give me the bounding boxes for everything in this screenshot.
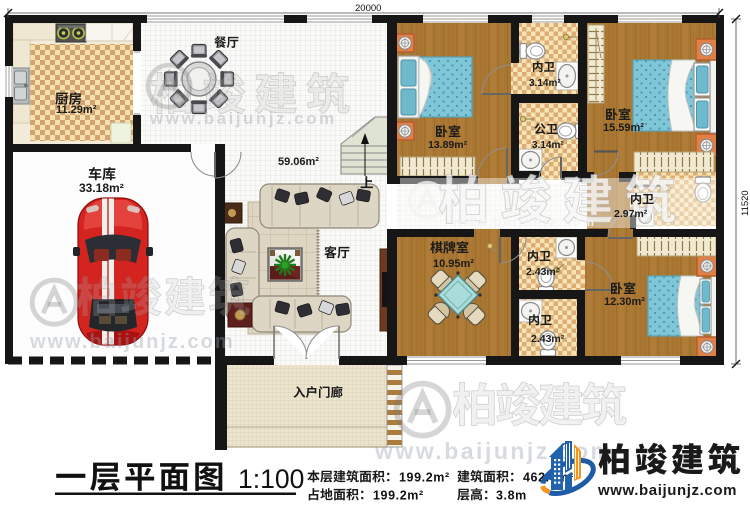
svg-text:2.43m²: 2.43m² xyxy=(531,333,565,345)
svg-text:20000: 20000 xyxy=(355,3,381,14)
svg-text:www.baijunjz.com: www.baijunjz.com xyxy=(29,331,235,353)
svg-text:2.97m²: 2.97m² xyxy=(614,208,648,220)
svg-text:1:100: 1:100 xyxy=(238,464,304,494)
svg-text:33.18m²: 33.18m² xyxy=(79,181,124,195)
svg-text:3.8m: 3.8m xyxy=(496,489,527,503)
svg-text:12.30m²: 12.30m² xyxy=(604,296,645,308)
svg-text:www.baijunjz.com: www.baijunjz.com xyxy=(149,109,337,128)
svg-text:11.29m²: 11.29m² xyxy=(56,104,97,116)
svg-text:59.06m²: 59.06m² xyxy=(278,156,319,168)
svg-text:199.2m²: 199.2m² xyxy=(399,471,450,485)
svg-text:11520: 11520 xyxy=(740,190,750,216)
svg-text:10.95m²: 10.95m² xyxy=(433,258,474,270)
svg-text:www.baijunjz.com: www.baijunjz.com xyxy=(597,482,737,499)
svg-text:www.baijunjz.com: www.baijunjz.com xyxy=(451,214,596,229)
svg-text:15.59m²: 15.59m² xyxy=(603,122,644,134)
svg-text:13.89m²: 13.89m² xyxy=(428,139,468,151)
svg-text:2.43m²: 2.43m² xyxy=(526,266,560,278)
svg-text:3.14m²: 3.14m² xyxy=(529,78,561,89)
svg-text:3.14m²: 3.14m² xyxy=(532,140,564,151)
svg-text:199.2m²: 199.2m² xyxy=(373,489,424,503)
